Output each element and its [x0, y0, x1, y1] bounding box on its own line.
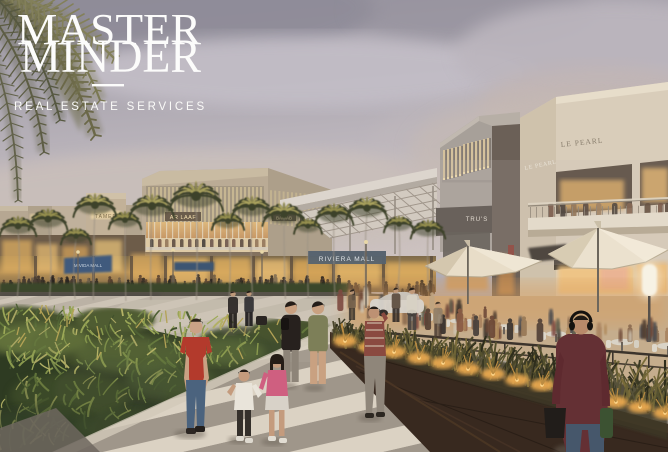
svg-text:MINDER: MINDER: [20, 30, 201, 83]
svg-text:REAL ESTATE SERVICES: REAL ESTATE SERVICES: [14, 101, 207, 113]
